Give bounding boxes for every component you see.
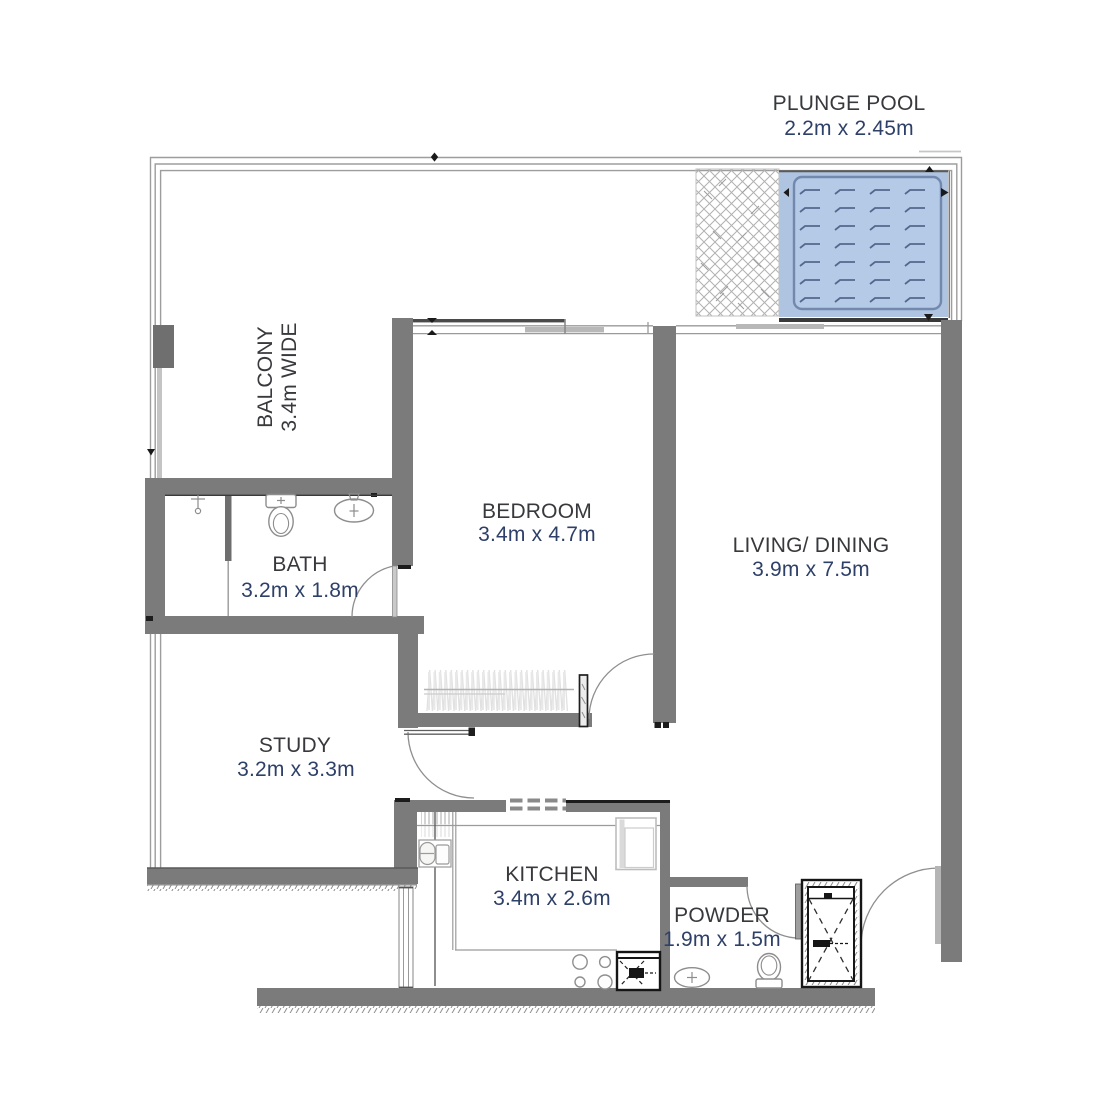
svg-text:BALCONY: BALCONY — [254, 326, 277, 428]
svg-text:3.4m WIDE: 3.4m WIDE — [278, 322, 301, 431]
svg-text:2.2m x 2.45m: 2.2m x 2.45m — [784, 117, 914, 140]
svg-text:STUDY: STUDY — [259, 734, 331, 757]
svg-text:POWDER: POWDER — [674, 904, 770, 927]
svg-text:3.2m x 1.8m: 3.2m x 1.8m — [241, 579, 359, 602]
svg-text:KITCHEN: KITCHEN — [505, 863, 599, 886]
svg-text:BEDROOM: BEDROOM — [482, 500, 592, 523]
svg-text:3.4m x 4.7m: 3.4m x 4.7m — [478, 523, 596, 546]
svg-text:PLUNGE POOL: PLUNGE POOL — [773, 92, 926, 115]
svg-text:3.9m x 7.5m: 3.9m x 7.5m — [752, 558, 870, 581]
svg-text:3.4m x 2.6m: 3.4m x 2.6m — [493, 887, 611, 910]
svg-text:LIVING/ DINING: LIVING/ DINING — [733, 534, 890, 557]
svg-text:BATH: BATH — [272, 553, 327, 576]
svg-text:1.9m x 1.5m: 1.9m x 1.5m — [663, 928, 781, 951]
svg-text:3.2m x 3.3m: 3.2m x 3.3m — [237, 758, 355, 781]
